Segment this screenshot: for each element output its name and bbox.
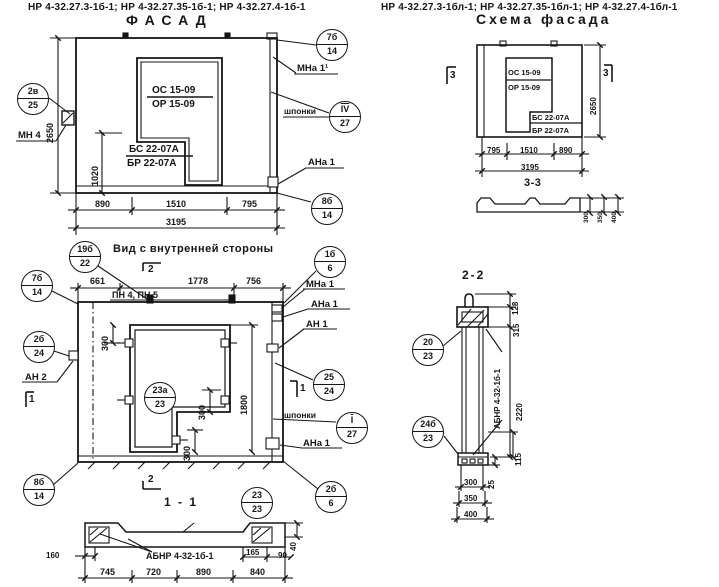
callout-24b-23: 24б23 xyxy=(412,416,444,448)
dim-25: 25 xyxy=(486,480,497,489)
inner-view-title: Вид с внутренней стороны xyxy=(113,244,274,255)
section-1-1-title: 1 - 1 xyxy=(164,497,198,508)
schema-layer-400: 400 xyxy=(609,212,620,223)
section-marker-1-right: 1 xyxy=(300,383,306,394)
callout-8b-14-left: 8б14 xyxy=(23,474,55,506)
section-3-3-title: 3-3 xyxy=(524,178,541,189)
facade-dim-795: 795 xyxy=(242,199,257,210)
schema-mark-bs: БС 22-07А xyxy=(532,112,569,123)
inner-dim-1800: 1800 xyxy=(239,395,250,415)
inner-label-ana1: АНа 1 xyxy=(311,299,338,310)
facade-dim-1020: 1020 xyxy=(90,166,101,186)
dim-40: 40 xyxy=(288,542,299,551)
callout-7b-14: 7б14 xyxy=(316,29,348,61)
facade-title: ФАСАД xyxy=(126,15,213,26)
dim-300-bottom: 300 xyxy=(464,477,477,488)
facade-mark-br: БР 22-07А xyxy=(127,158,176,169)
inner-dim-300c: 300 xyxy=(182,446,193,461)
section-marker-2-bottom: 2 xyxy=(148,474,154,485)
inner-label-pn: ПН 4, ПН 5 xyxy=(112,290,158,301)
schema-dim-total: 3195 xyxy=(521,162,539,173)
facade-mark-os: ОС 15-09 xyxy=(152,85,195,96)
inner-label-shponki: шпонки xyxy=(284,410,316,421)
dim-720: 720 xyxy=(146,567,161,578)
blueprint-sheet: НР 4-32.27.3-1б-1; НР 4-32.27.35-1б-1; Н… xyxy=(0,0,719,587)
dim-90: 90 xyxy=(278,550,287,561)
facade-dim-height: 2650 xyxy=(45,123,56,143)
facade-mark-or: ОР 15-09 xyxy=(152,99,195,110)
callout-2v-25: 2в25 xyxy=(17,83,49,115)
callout-8b-14: 8б14 xyxy=(311,193,343,225)
facade-label-mn4: МН 4 xyxy=(18,130,41,141)
callout-7b-14-left: 7б14 xyxy=(21,270,53,302)
section-marker-3-left: 3 xyxy=(450,70,456,81)
callout-keys-iv-27: IV27 xyxy=(329,101,361,133)
drawing-linework xyxy=(0,0,719,587)
facade-label-shponki: шпонки xyxy=(284,106,316,117)
schema-dim-890: 890 xyxy=(559,145,572,156)
dim-160: 160 xyxy=(46,550,59,561)
schema-layer-350: 350 xyxy=(595,212,606,223)
section-marker-2-top: 2 xyxy=(148,264,154,275)
dim-115: 115 xyxy=(513,453,524,466)
dim-840: 840 xyxy=(250,567,265,578)
section-marker-3-right: 3 xyxy=(603,68,609,79)
inner-label-an1: АН 1 xyxy=(306,319,328,330)
callout-20-23: 2023 xyxy=(412,334,444,366)
section-marker-1-left: 1 xyxy=(29,394,35,405)
dim-128: 128 xyxy=(510,302,521,315)
schema-dim-1510: 1510 xyxy=(520,145,538,156)
schema-mark-or: ОР 15-09 xyxy=(508,82,540,93)
inner-label-ana1b: АНа 1 xyxy=(303,438,330,449)
facade-dim-890: 890 xyxy=(95,199,110,210)
callout-23a-23: 23а23 xyxy=(144,382,176,414)
callout-19b-22: 19б22 xyxy=(69,241,101,273)
facade-mark-bs: БС 22-07А xyxy=(129,144,179,155)
section-2-2-title: 2-2 xyxy=(462,270,485,281)
facade-dim-1510: 1510 xyxy=(166,199,186,210)
inner-dim-300a: 300 xyxy=(100,336,111,351)
dim-745: 745 xyxy=(100,567,115,578)
dim-350-bottom: 350 xyxy=(464,493,477,504)
dim-890: 890 xyxy=(196,567,211,578)
callout-2b-6: 2б6 xyxy=(315,481,347,513)
dim-2220: 2220 xyxy=(514,403,525,421)
schema-title: Схема фасада xyxy=(476,14,611,25)
section-2-2-panel-mark: АБНР 4-32-1б-1 xyxy=(492,369,503,429)
inner-dim-756: 756 xyxy=(246,276,261,287)
callout-23-23: 2323 xyxy=(241,487,273,519)
callout-2b-24: 2б24 xyxy=(23,331,55,363)
facade-dim-total: 3195 xyxy=(166,217,186,228)
facade-label-mna1: МНа 1¹ xyxy=(297,63,328,74)
inner-dim-1778: 1778 xyxy=(188,276,208,287)
schema-mark-os: ОС 15-09 xyxy=(508,67,541,78)
inner-dim-661: 661 xyxy=(90,276,105,287)
dim-165: 165 xyxy=(246,547,259,558)
inner-dim-300b: 300 xyxy=(197,405,208,420)
callout-1b-6: 1б6 xyxy=(314,246,346,278)
schema-mark-br: БР 22-07А xyxy=(532,125,569,136)
callout-25-24: 2524 xyxy=(313,369,345,401)
schema-dim-height: 2650 xyxy=(588,97,599,115)
schema-layer-300: 300 xyxy=(581,212,592,223)
schema-dim-795: 795 xyxy=(487,145,500,156)
inner-label-an2: АН 2 xyxy=(25,372,47,383)
dim-400-bottom: 400 xyxy=(464,509,477,520)
facade-label-ana1: АНа 1 xyxy=(308,157,335,168)
callout-keys-i-27: I27 xyxy=(336,412,368,444)
dim-315: 315 xyxy=(511,324,522,337)
inner-label-mna1: МНа 1 xyxy=(306,279,334,290)
section-1-1-panel-mark: АБНР 4-32-1б-1 xyxy=(146,551,214,562)
